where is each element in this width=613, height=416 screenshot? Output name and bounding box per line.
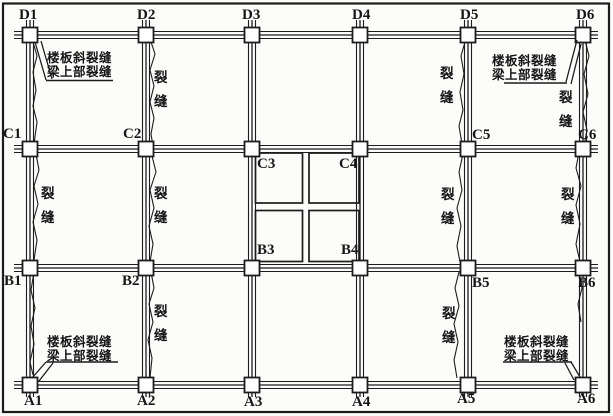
- grid-label-C4: C4: [339, 157, 357, 171]
- grid-label-D2: D2: [137, 8, 155, 22]
- corner-note-top-right: 楼板斜裂缝梁上部裂缝: [492, 54, 557, 82]
- corner-note-line1: 楼板斜裂缝: [504, 335, 569, 349]
- grid-label-C3: C3: [257, 157, 275, 171]
- corner-note-line2: 梁上部裂缝: [504, 349, 569, 363]
- crack-label-char: 裂: [441, 188, 455, 201]
- crack-label-char: 缝: [441, 212, 455, 225]
- crack-label-char: 缝: [154, 95, 168, 108]
- crack-label-char: 裂: [442, 307, 456, 320]
- crack-label-vertical-0: 裂缝: [154, 71, 168, 108]
- grid-label-A6: A6: [577, 392, 595, 406]
- grid-label-A1: A1: [24, 394, 42, 408]
- crack-label-vertical-3: 裂缝: [41, 187, 55, 224]
- crack-label-vertical-5: 裂缝: [441, 188, 455, 225]
- crack-label-char: 裂: [559, 91, 573, 104]
- grid-label-A4: A4: [352, 395, 370, 409]
- corner-note-bottom-left: 楼板斜裂缝梁上部裂缝: [47, 335, 112, 363]
- crack-label-char: 缝: [154, 329, 168, 342]
- labels-layer: D1D2D3D4D5D6C1C2C3C4C5C6B1B2B3B4B5B6A1A2…: [0, 0, 613, 416]
- crack-label-char: 裂: [154, 187, 168, 200]
- crack-label-vertical-8: 裂缝: [442, 307, 456, 344]
- crack-label-char: 裂: [154, 71, 168, 84]
- grid-label-B5: B5: [472, 276, 490, 290]
- grid-label-D6: D6: [576, 8, 594, 22]
- corner-note-top-left: 楼板斜裂缝梁上部裂缝: [47, 51, 112, 79]
- grid-label-B6: B6: [578, 276, 596, 290]
- corner-note-line2: 梁上部裂缝: [492, 68, 557, 82]
- grid-label-B3: B3: [257, 243, 275, 257]
- grid-label-C2: C2: [123, 127, 141, 141]
- grid-label-A5: A5: [457, 392, 475, 406]
- crack-label-char: 缝: [440, 91, 454, 104]
- crack-label-vertical-6: 裂缝: [561, 188, 575, 225]
- crack-label-char: 缝: [41, 211, 55, 224]
- grid-label-C1: C1: [3, 127, 21, 141]
- crack-label-char: 缝: [442, 331, 456, 344]
- crack-label-char: 裂: [440, 67, 454, 80]
- grid-label-D1: D1: [19, 8, 37, 22]
- grid-label-B2: B2: [122, 274, 140, 288]
- structural-crack-plan-figure: D1D2D3D4D5D6C1C2C3C4C5C6B1B2B3B4B5B6A1A2…: [0, 0, 613, 416]
- grid-label-C6: C6: [578, 128, 596, 142]
- grid-label-B1: B1: [4, 274, 22, 288]
- grid-label-A3: A3: [244, 395, 262, 409]
- corner-note-line1: 楼板斜裂缝: [47, 51, 112, 65]
- corner-note-line2: 梁上部裂缝: [47, 65, 112, 79]
- crack-label-char: 缝: [561, 212, 575, 225]
- crack-label-vertical-4: 裂缝: [154, 187, 168, 224]
- crack-label-vertical-2: 裂缝: [559, 91, 573, 128]
- corner-note-line1: 楼板斜裂缝: [492, 54, 557, 68]
- crack-label-char: 裂: [561, 188, 575, 201]
- grid-label-A2: A2: [137, 394, 155, 408]
- crack-label-char: 缝: [154, 211, 168, 224]
- grid-label-B4: B4: [341, 243, 359, 257]
- corner-note-line1: 楼板斜裂缝: [47, 335, 112, 349]
- crack-label-char: 裂: [154, 305, 168, 318]
- corner-note-bottom-right: 楼板斜裂缝梁上部裂缝: [504, 335, 569, 363]
- grid-label-D4: D4: [352, 8, 370, 22]
- crack-label-vertical-1: 裂缝: [440, 67, 454, 104]
- grid-label-C5: C5: [472, 128, 490, 142]
- grid-label-D3: D3: [242, 8, 260, 22]
- crack-label-char: 裂: [41, 187, 55, 200]
- crack-label-vertical-7: 裂缝: [154, 305, 168, 342]
- crack-label-char: 缝: [559, 115, 573, 128]
- grid-label-D5: D5: [460, 8, 478, 22]
- corner-note-line2: 梁上部裂缝: [47, 349, 112, 363]
